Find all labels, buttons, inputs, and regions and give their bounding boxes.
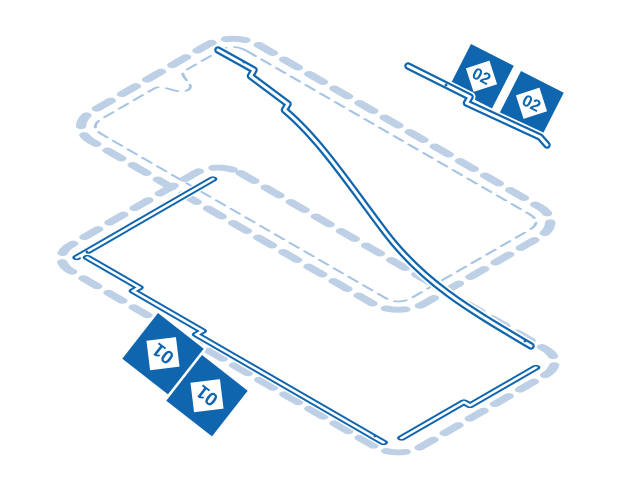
display-frame-outline-dashed (48, 160, 568, 460)
alignment-dot (445, 84, 448, 87)
alignment-dot (86, 251, 89, 254)
display-frame-group (48, 160, 568, 460)
alignment-dot (374, 435, 377, 438)
diagram-canvas: 01 01 02 02 (0, 0, 640, 480)
adhesive-placement-illustration: 01 01 02 02 (0, 0, 640, 480)
alignment-dot (243, 61, 246, 64)
alignment-dot (524, 340, 527, 343)
frame-strip-top-left-channel (77, 179, 213, 258)
frame-strip-bottom-right (402, 364, 536, 442)
